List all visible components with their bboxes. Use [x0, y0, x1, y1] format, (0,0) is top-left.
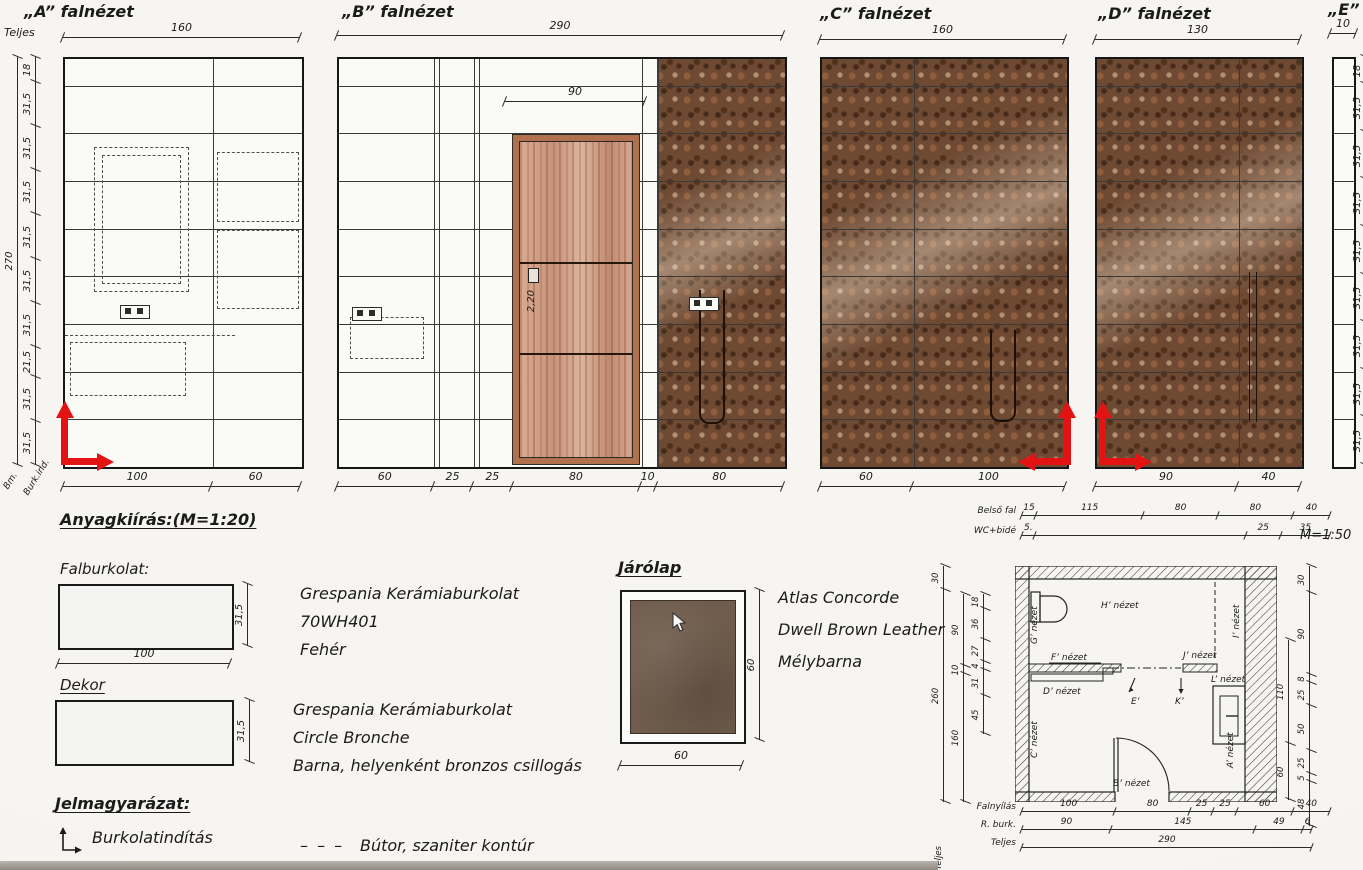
dim-label: 18: [23, 63, 33, 76]
dim-label: 31,5: [23, 388, 33, 410]
dim-label: 10: [1336, 18, 1350, 29]
dim-segment: 90: [1302, 593, 1314, 675]
dim-segment: 18: [1356, 57, 1363, 84]
bm-label: Bm.: [2, 471, 20, 491]
legend-title: Jelmagyarázat:: [55, 794, 190, 813]
dim-label: 10: [641, 471, 655, 482]
door-height-symbol: [528, 268, 539, 283]
dim-label: 31,5: [235, 604, 245, 626]
decor-desc-2: Circle Bronche: [293, 728, 410, 747]
dim-label: 31,5: [23, 432, 33, 454]
arrow-head: [1094, 401, 1112, 418]
dim-label: 60: [1277, 766, 1286, 777]
dim-label: 160: [932, 24, 953, 35]
dim-label: 160: [952, 730, 961, 746]
plan-bottom-row2-dims: 90145496: [1022, 822, 1312, 834]
tile-row: [822, 325, 1067, 373]
radiator-outline: [350, 317, 424, 359]
dim-label: 5.: [1024, 524, 1033, 533]
plan-label-i: I’ nézet: [1231, 604, 1242, 638]
dim-segment: 6: [1303, 822, 1312, 834]
plan-wall-left: [1015, 566, 1029, 802]
dim-label: 18: [1353, 64, 1363, 77]
dim-segment: 60: [211, 477, 300, 493]
tile-start-arrow-c: [1013, 393, 1071, 465]
dim-label: 40: [1261, 471, 1275, 482]
dim-segment: 31,5: [26, 82, 42, 126]
tile-row: [822, 277, 1067, 325]
tile-joint: [434, 59, 435, 467]
plan-bottom-row3-dims: 290: [1022, 840, 1312, 852]
floor-tile-desc-1: Atlas Concorde: [778, 588, 899, 607]
dim-segment: 60: [620, 756, 742, 772]
tile-row: [1097, 182, 1302, 230]
plan-label-e: E’: [1131, 697, 1140, 707]
dim-label: 25: [445, 471, 459, 482]
plan-right-outer-dims: 30908255025548: [1302, 566, 1314, 826]
tile-row: [1334, 277, 1354, 325]
dim-segment: 10: [1330, 24, 1356, 40]
dim-label: 60: [249, 471, 263, 482]
dim-segment: 25: [472, 477, 512, 493]
dim-label: 31,5: [1353, 382, 1363, 404]
plan-top-row2-label: WC+bidé: [948, 526, 1016, 536]
dim-segment: 100: [1022, 804, 1115, 816]
view-c-title: „C” falnézet: [820, 4, 931, 23]
dim-label: 25: [1298, 757, 1307, 768]
dim-label: 90: [1159, 471, 1173, 482]
dim-segment: 45: [976, 696, 988, 734]
dim-label: 290: [550, 20, 571, 31]
view-a-teljes-label: Teljes: [4, 26, 35, 39]
arrow-bar: [1099, 458, 1137, 465]
dim-segment: 80: [1218, 508, 1293, 520]
view-d-width-dim: 130: [1095, 30, 1300, 46]
dim-segment: 60: [1237, 804, 1293, 816]
arrow-bar: [1033, 458, 1071, 465]
wall-tile-desc-1: Grespania Kerámiaburkolat: [300, 584, 519, 603]
dim-label: 100: [134, 648, 155, 659]
tile-row: [1097, 277, 1302, 325]
dim-segment: 60: [1281, 744, 1293, 800]
arrow-head: [1059, 401, 1077, 418]
wall-view-c: [820, 57, 1069, 469]
tile-row: [65, 59, 302, 87]
arrow-head: [97, 453, 114, 471]
dim-segment: 31,5: [240, 700, 256, 762]
dim-segment: 18: [26, 57, 42, 82]
plan-top-row2-dims: 5.2535: [1022, 528, 1330, 540]
dim-segment: 31,5: [26, 421, 42, 465]
view-c-width-dim: 160: [820, 30, 1065, 46]
dim-segment: 145: [1111, 822, 1255, 834]
tile-row: [1334, 325, 1354, 373]
tile-row: [1334, 182, 1354, 230]
tile-start-legend-icon: [58, 826, 82, 856]
dim-segment: 31,5: [1356, 417, 1363, 465]
dim-segment: 160: [956, 674, 968, 802]
dim-segment: 290: [337, 26, 783, 42]
white-tile-height-dim: 31,5: [238, 584, 254, 646]
plan-left-outer-dims: 30260: [936, 566, 948, 802]
dim-label: 130: [1187, 24, 1208, 35]
view-b-width-dim: 290: [337, 26, 783, 42]
socket-symbol: [120, 305, 150, 319]
tile-start-arrow-a: [61, 393, 119, 465]
dim-label: 31,5: [1353, 192, 1363, 214]
plan-wall-right: [1245, 566, 1277, 802]
dim-label: 30: [932, 573, 941, 584]
dim-segment: 21,5: [26, 347, 42, 377]
tile-joint: [213, 59, 214, 467]
dim-label: 36: [972, 619, 981, 630]
plan-wall-top: [1015, 566, 1277, 579]
dim-label: 40: [1306, 504, 1317, 513]
dim-segment: 80: [1143, 508, 1218, 520]
decor-desc-1: Grespania Kerámiaburkolat: [293, 700, 512, 719]
plan-right-inner-dims: 11060: [1281, 640, 1293, 800]
dim-label: 25: [1257, 524, 1268, 533]
dim-label: 6: [1305, 818, 1311, 827]
dim-segment: 36: [976, 609, 988, 639]
door: 2,20: [512, 134, 640, 465]
dim-label: 60: [859, 471, 873, 482]
drawing-sheet: „A” falnézet Teljes 160 270 1831,531,531…: [0, 0, 1363, 870]
materials-section-title: Anyagkiírás:(M=1:20): [60, 510, 256, 529]
dim-segment: [1035, 528, 1246, 540]
dim-label: 31,5: [237, 720, 247, 742]
dim-label: 30: [1298, 574, 1307, 585]
dim-segment: 80: [512, 477, 639, 493]
dim-label: 80: [569, 471, 583, 482]
dim-segment: 25: [433, 477, 473, 493]
wall-tile-desc-3: Fehér: [300, 640, 346, 659]
dim-label: 270: [5, 251, 15, 270]
floor-tile-height-dim: 60: [750, 590, 766, 740]
cabinet-outline-upper: [217, 152, 299, 222]
view-b-door-width-dim: 90: [505, 92, 645, 108]
wall-view-a: [63, 57, 304, 469]
dim-label: 290: [1158, 836, 1175, 845]
tile-row: [1334, 134, 1354, 182]
arrow-head: [56, 401, 74, 418]
dim-segment: 90: [956, 594, 968, 666]
dim-segment: 49: [1255, 822, 1304, 834]
dim-label: 27: [972, 646, 981, 657]
dim-label: 110: [1277, 684, 1286, 700]
dim-label: 25: [1196, 800, 1207, 809]
arrow-head: [1018, 453, 1035, 471]
tile-row: [1097, 230, 1302, 278]
dim-segment: 110: [1281, 640, 1293, 744]
tile-row: [822, 182, 1067, 230]
dim-label: 60: [378, 471, 392, 482]
dim-label: 90: [1061, 818, 1072, 827]
dim-segment: 25: [1246, 528, 1281, 540]
dim-label: 145: [1174, 818, 1191, 827]
dim-segment: 60: [750, 590, 766, 740]
tile-start-arrow-d: [1099, 393, 1157, 465]
dim-segment: 31,5: [1356, 275, 1363, 323]
dim-label: 31,5: [23, 93, 33, 115]
decor-label: Dekor: [60, 676, 105, 694]
dim-label: 260: [932, 688, 941, 704]
dim-label: 100: [127, 471, 148, 482]
socket-symbol: [352, 307, 382, 321]
dim-segment: 60: [337, 477, 433, 493]
dim-segment: 60: [820, 477, 912, 493]
door-rail: [520, 262, 632, 264]
plan-partition-right: [1183, 664, 1217, 672]
dim-segment: 30: [1302, 566, 1314, 593]
tile-rows-e: [1334, 59, 1354, 467]
dim-label: 31,5: [1353, 97, 1363, 119]
tile-row: [1097, 59, 1302, 87]
plan-label-h: H’ nézet: [1101, 600, 1139, 611]
dim-segment: 100: [912, 477, 1065, 493]
plan-label-j: J’ nézet: [1181, 650, 1217, 661]
tile-row: [822, 134, 1067, 182]
dim-segment: 31,5: [1356, 322, 1363, 370]
dim-segment: 130: [1095, 30, 1300, 46]
cabinet-outline-lower: [217, 230, 299, 309]
mirror-inner-outline: [102, 155, 181, 284]
dim-segment: 40: [1237, 477, 1300, 493]
plan-label-g: G’ nézet: [1029, 606, 1040, 644]
dim-label: 31,5: [1353, 287, 1363, 309]
dim-label: 60: [747, 659, 757, 672]
tile-joint: [479, 59, 480, 467]
view-b-bottom-dims: 602525801080: [337, 477, 783, 493]
legend-dash-symbol: – – –: [300, 836, 344, 855]
dim-label: 50: [1298, 723, 1307, 734]
tile-row: [65, 87, 302, 135]
dim-label: 160: [171, 22, 192, 33]
legend-start-label: Burkolatindítás: [92, 828, 213, 847]
plan-washbasin-counter: [1031, 674, 1103, 681]
view-a-row-height-dims: 1831,531,531,531,531,531,521,531,531,5: [26, 57, 42, 465]
dim-segment: 31,5: [26, 126, 42, 170]
floor-plan: H’ nézet G’ nézet F’ nézet I’ nézet J’ n…: [1015, 566, 1277, 802]
tile-row: [1097, 134, 1302, 182]
wall-view-d: [1095, 57, 1304, 469]
tile-joint: [474, 59, 475, 467]
dim-label: 60: [674, 750, 688, 761]
tile-row: [1097, 87, 1302, 135]
tile-row: [1334, 373, 1354, 421]
dim-label: 90: [1298, 629, 1307, 640]
dim-segment: 260: [936, 590, 948, 802]
dim-segment: 40: [1293, 804, 1330, 816]
tile-row: [1334, 59, 1354, 87]
door-leaf: 2,20: [519, 141, 633, 458]
floor-tile-title: Járólap: [618, 558, 681, 577]
dim-segment: 31: [976, 670, 988, 696]
tile-row: [1334, 87, 1354, 135]
dim-segment: 50: [1302, 706, 1314, 751]
plan-label-l: L’ nézet: [1211, 674, 1246, 685]
dim-label: 31,5: [1353, 144, 1363, 166]
tile-joint: [1239, 59, 1240, 467]
floor-tile-desc-2: Dwell Brown Leather: [778, 620, 944, 639]
view-b-title: „B” falnézet: [342, 2, 454, 21]
dim-label: 31: [972, 678, 981, 689]
dim-segment: 31,5: [1356, 84, 1363, 132]
dim-label: 31,5: [23, 181, 33, 203]
dim-label: 31,5: [23, 269, 33, 291]
plan-toilet-bowl: [1040, 596, 1067, 622]
tile-joint: [657, 59, 658, 467]
dim-segment: 31,5: [1356, 179, 1363, 227]
tile-joint: [642, 59, 643, 467]
dim-label: 31,5: [23, 137, 33, 159]
white-tile-width-dim: 100: [58, 654, 230, 670]
dim-label: 21,5: [23, 351, 33, 373]
plan-bottom-row3-label: Teljes: [948, 838, 1016, 848]
view-a-bottom-dims: 10060: [63, 477, 300, 493]
floor-tile-desc-3: Mélybarna: [778, 652, 862, 671]
dim-label: 115: [1081, 504, 1098, 513]
tile-row: [822, 87, 1067, 135]
dim-segment: 160: [63, 28, 300, 44]
tile-row: [1334, 230, 1354, 278]
mouse-cursor: [672, 612, 688, 634]
wall-tile-label: Falburkolat:: [60, 560, 149, 578]
dim-label: 25: [1298, 689, 1307, 700]
tile-row: [822, 59, 1067, 87]
counter-dash-line: [65, 335, 235, 336]
plan-label-c: C’ nézet: [1029, 721, 1040, 758]
dim-segment: 31,5: [238, 584, 254, 646]
tile-row: [1097, 325, 1302, 373]
view-a-width-dim: 160: [63, 28, 300, 44]
dim-label: 90: [568, 86, 582, 97]
dim-label: 40: [1306, 800, 1317, 809]
plan-label-d: D’ nézet: [1043, 686, 1081, 697]
plan-label-b: B’ nézet: [1113, 778, 1150, 789]
dim-segment: 31,5: [1356, 132, 1363, 180]
dim-segment: 90: [1022, 822, 1111, 834]
tile-joint: [439, 59, 440, 467]
plan-label-a: A’ nézet: [1225, 732, 1236, 769]
white-tile-swatch: [58, 584, 234, 650]
wall-tile-desc-2: 70WH401: [300, 612, 379, 631]
view-c-bottom-dims: 60100: [820, 477, 1065, 493]
plan-bottom-row1-label: Falnyílás: [948, 802, 1016, 812]
plan-left-inner-dims: 18362743145: [976, 594, 988, 734]
dim-segment: 80: [1115, 804, 1190, 816]
floor-tile-width-dim: 60: [620, 756, 742, 772]
view-d-title: „D” falnézet: [1098, 4, 1211, 23]
dim-segment: 31,5: [1356, 227, 1363, 275]
dim-label: 18: [972, 596, 981, 607]
dim-segment: 80: [656, 477, 783, 493]
dim-segment: 100: [58, 654, 230, 670]
plan-arrow-k-head: [1178, 689, 1183, 694]
dim-label: 31,5: [1353, 240, 1363, 262]
dim-label: 100: [978, 471, 999, 482]
plan-top-row1-dims: 15115808040: [1022, 508, 1330, 520]
dim-segment: 115: [1036, 508, 1143, 520]
dim-label: 31,5: [23, 225, 33, 247]
decor-tile-height-dim: 31,5: [240, 700, 256, 762]
dim-label: 31,5: [1353, 335, 1363, 357]
door-rail: [520, 353, 632, 355]
legend-dash-label: Bútor, szaniter kontúr: [360, 836, 534, 855]
dim-segment: 40: [1293, 508, 1330, 520]
view-d-bottom-dims: 9040: [1095, 477, 1300, 493]
dim-label: 80: [1147, 800, 1158, 809]
dim-segment: 290: [1022, 840, 1312, 852]
plan-bottom-row2-label: R. burk.: [948, 820, 1016, 830]
view-e-width-dim: 10: [1330, 24, 1356, 40]
door-height-label: 2,20: [526, 290, 537, 312]
dim-label: 80: [712, 471, 726, 482]
decor-desc-3: Barna, helyenként bronzos csillogás: [293, 756, 582, 775]
dim-label: 80: [1175, 504, 1186, 513]
decor-tile-swatch: [55, 700, 234, 766]
vanity-outline: [70, 342, 186, 396]
tile-row: [822, 230, 1067, 278]
dim-label: 25: [485, 471, 499, 482]
dim-label: 60: [1259, 800, 1270, 809]
wall-view-b: 2,20: [337, 57, 787, 469]
dim-segment: 90: [1095, 477, 1237, 493]
dim-label: 80: [1250, 504, 1261, 513]
plan-label-f: F’ nézet: [1051, 652, 1087, 663]
dim-segment: 100: [63, 477, 211, 493]
mixer-symbol: [689, 297, 719, 311]
paper-edge-shadow: [0, 861, 938, 870]
plan-top-row1-label: Belső fal: [948, 506, 1016, 516]
dim-segment: 31,5: [26, 377, 42, 421]
dim-segment: 160: [820, 30, 1065, 46]
dim-label: 31,5: [23, 314, 33, 336]
tile-row: [1334, 420, 1354, 467]
plan-label-k: K’: [1175, 697, 1184, 707]
view-e-row-height-dims: 1831,531,531,531,531,531,531,531,5: [1356, 57, 1363, 465]
plan-scale-label: M=1:50: [1300, 528, 1351, 543]
arrow-bar: [61, 458, 99, 465]
view-a-title: „A” falnézet: [24, 2, 134, 21]
dim-label: 100: [1060, 800, 1077, 809]
dim-label: 45: [972, 710, 981, 721]
dim-segment: 90: [505, 92, 645, 108]
dim-label: 49: [1273, 818, 1284, 827]
dim-label: 90: [952, 625, 961, 636]
dim-segment: 25: [1213, 804, 1236, 816]
dim-segment: 31,5: [1356, 370, 1363, 418]
towel-rail-fixture: [1249, 272, 1257, 422]
arrow-head: [1135, 453, 1152, 471]
tile-joint: [914, 59, 915, 467]
dim-segment: 31,5: [26, 259, 42, 303]
dim-segment: 31,5: [26, 170, 42, 214]
dim-label: 31,5: [1353, 430, 1363, 452]
plan-left-mid-dims: 9010160: [956, 594, 968, 802]
dim-label: 15: [1023, 504, 1034, 513]
dim-segment: 31,5: [26, 303, 42, 347]
dim-segment: 31,5: [26, 214, 42, 258]
plan-bottom-row1-dims: 1008025256040: [1022, 804, 1330, 816]
dim-label: 25: [1219, 800, 1230, 809]
